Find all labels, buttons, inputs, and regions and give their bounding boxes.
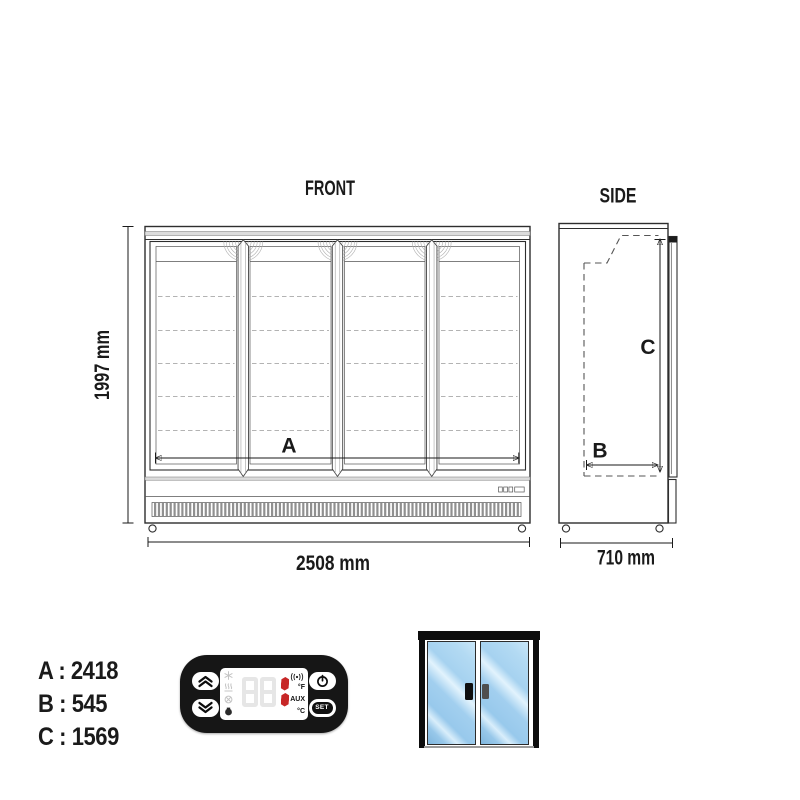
side-elevation-drawing: SIDE C <box>559 185 677 570</box>
dim-b-label: B <box>592 440 607 463</box>
front-title: FRONT <box>305 177 355 200</box>
side-door-edge <box>669 237 678 524</box>
ventilation-grille <box>152 503 521 517</box>
set-button: SET <box>309 699 336 717</box>
dim-a-label: A <box>281 435 296 458</box>
fridge-top-frame <box>418 631 540 640</box>
fahrenheit-label: °F <box>298 684 305 692</box>
set-button-label: SET <box>312 702 333 714</box>
status-icons-column <box>224 668 235 720</box>
fridge-right-frame <box>533 631 539 748</box>
caster-wheel <box>656 525 663 532</box>
fridge-left-handle <box>465 683 473 700</box>
power-button <box>309 672 336 690</box>
power-icon <box>309 672 336 690</box>
snowflake-icon <box>224 671 233 680</box>
height-dimension: 1997 mm <box>91 227 134 524</box>
thermostat-controller: SET <box>180 655 348 733</box>
dim-c: C <box>640 240 665 472</box>
fridge-right-handle <box>482 684 489 699</box>
up-arrows-button <box>192 672 219 690</box>
legend-row-a: A : 2418 <box>38 657 118 686</box>
legend-row-b: B : 545 <box>38 690 107 719</box>
dim-b: B <box>587 440 658 471</box>
seven-segment-ghost-digit <box>242 677 258 707</box>
elevation-drawings: FRONT <box>0 0 800 800</box>
signal-icon <box>290 673 304 681</box>
caster-wheel <box>149 525 156 532</box>
seven-segment-ghost-digit <box>260 677 276 707</box>
aux-label: AUX <box>290 696 305 704</box>
base-display-module <box>499 487 525 492</box>
defrost-icon <box>224 683 233 692</box>
celsius-label: °C <box>297 708 305 716</box>
width-dimension: 2508 mm <box>148 537 530 575</box>
fridge-left-frame <box>419 631 425 748</box>
display-labels-column: °F AUX °C <box>288 668 305 720</box>
height-dimension-label: 1997 mm <box>91 330 114 400</box>
technical-drawing-page: FRONT <box>0 0 800 800</box>
door-mullions <box>238 240 437 477</box>
caster-wheel <box>562 525 569 532</box>
controller-display: °F AUX °C <box>220 668 308 720</box>
dim-c-label: C <box>640 336 655 359</box>
side-title: SIDE <box>600 185 637 208</box>
legend-row-c: C : 1569 <box>38 723 119 752</box>
depth-dimension-label: 710 mm <box>597 547 655 570</box>
depth-dimension: 710 mm <box>561 538 673 570</box>
down-arrows-button <box>192 699 219 717</box>
up-arrows-icon <box>192 672 219 690</box>
width-dimension-label: 2508 mm <box>296 552 370 575</box>
double-door-fridge-icon <box>418 630 540 749</box>
down-arrows-icon <box>192 699 219 717</box>
fan-icon <box>224 695 233 704</box>
compressor-icon <box>224 707 233 716</box>
caster-wheel <box>518 525 525 532</box>
fridge-base <box>424 746 534 748</box>
front-elevation-drawing: FRONT <box>91 177 530 575</box>
